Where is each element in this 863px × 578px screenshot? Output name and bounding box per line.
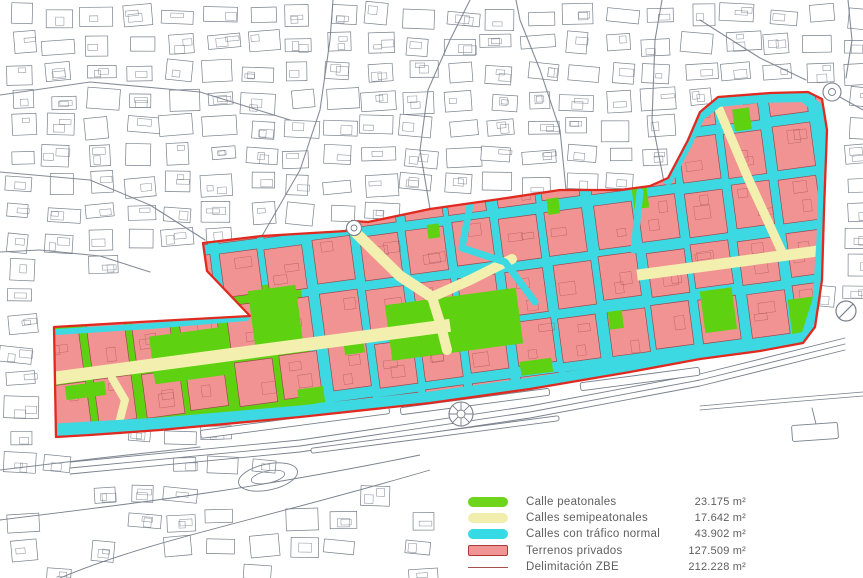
legend-area-value: 212.228 m² <box>674 561 746 573</box>
legend-area-value: 43.902 m² <box>674 528 746 540</box>
legend-swatch-traffic <box>468 529 508 539</box>
roundabout-icon <box>823 83 841 101</box>
legend-swatch-semipedestrian <box>468 513 508 523</box>
map-canvas: Calle peatonales23.175 m²Calles semipeat… <box>0 0 863 578</box>
legend-swatch-zbe <box>468 567 508 568</box>
legend-item-pedestrian: Calle peatonales23.175 m² <box>468 496 746 507</box>
legend-item-zbe: Delimitación ZBE212.228 m² <box>468 562 746 573</box>
plaza-roundabout-icon <box>449 402 473 426</box>
legend-label: Calles con tráfico normal <box>526 528 674 540</box>
legend-area-value: 23.175 m² <box>674 496 746 508</box>
roundabout-icon <box>347 221 362 236</box>
map-legend: Calle peatonales23.175 m²Calles semipeat… <box>468 496 746 578</box>
legend-label: Delimitación ZBE <box>526 561 674 573</box>
legend-label: Calle peatonales <box>526 496 674 508</box>
legend-label: Terrenos privados <box>526 545 674 557</box>
legend-item-private: Terrenos privados127.509 m² <box>468 545 746 556</box>
legend-swatch-private <box>468 545 508 556</box>
legend-item-traffic: Calles con tráfico normal43.902 m² <box>468 529 746 540</box>
legend-swatch-pedestrian <box>468 497 508 507</box>
city-map-graphic <box>0 0 863 578</box>
legend-area-value: 17.642 m² <box>674 512 746 524</box>
no-entry-icon <box>836 301 856 321</box>
legend-item-semipedestrian: Calles semipeatonales17.642 m² <box>468 512 746 523</box>
legend-label: Calles semipeatonales <box>526 512 674 524</box>
legend-area-value: 127.509 m² <box>674 545 746 557</box>
